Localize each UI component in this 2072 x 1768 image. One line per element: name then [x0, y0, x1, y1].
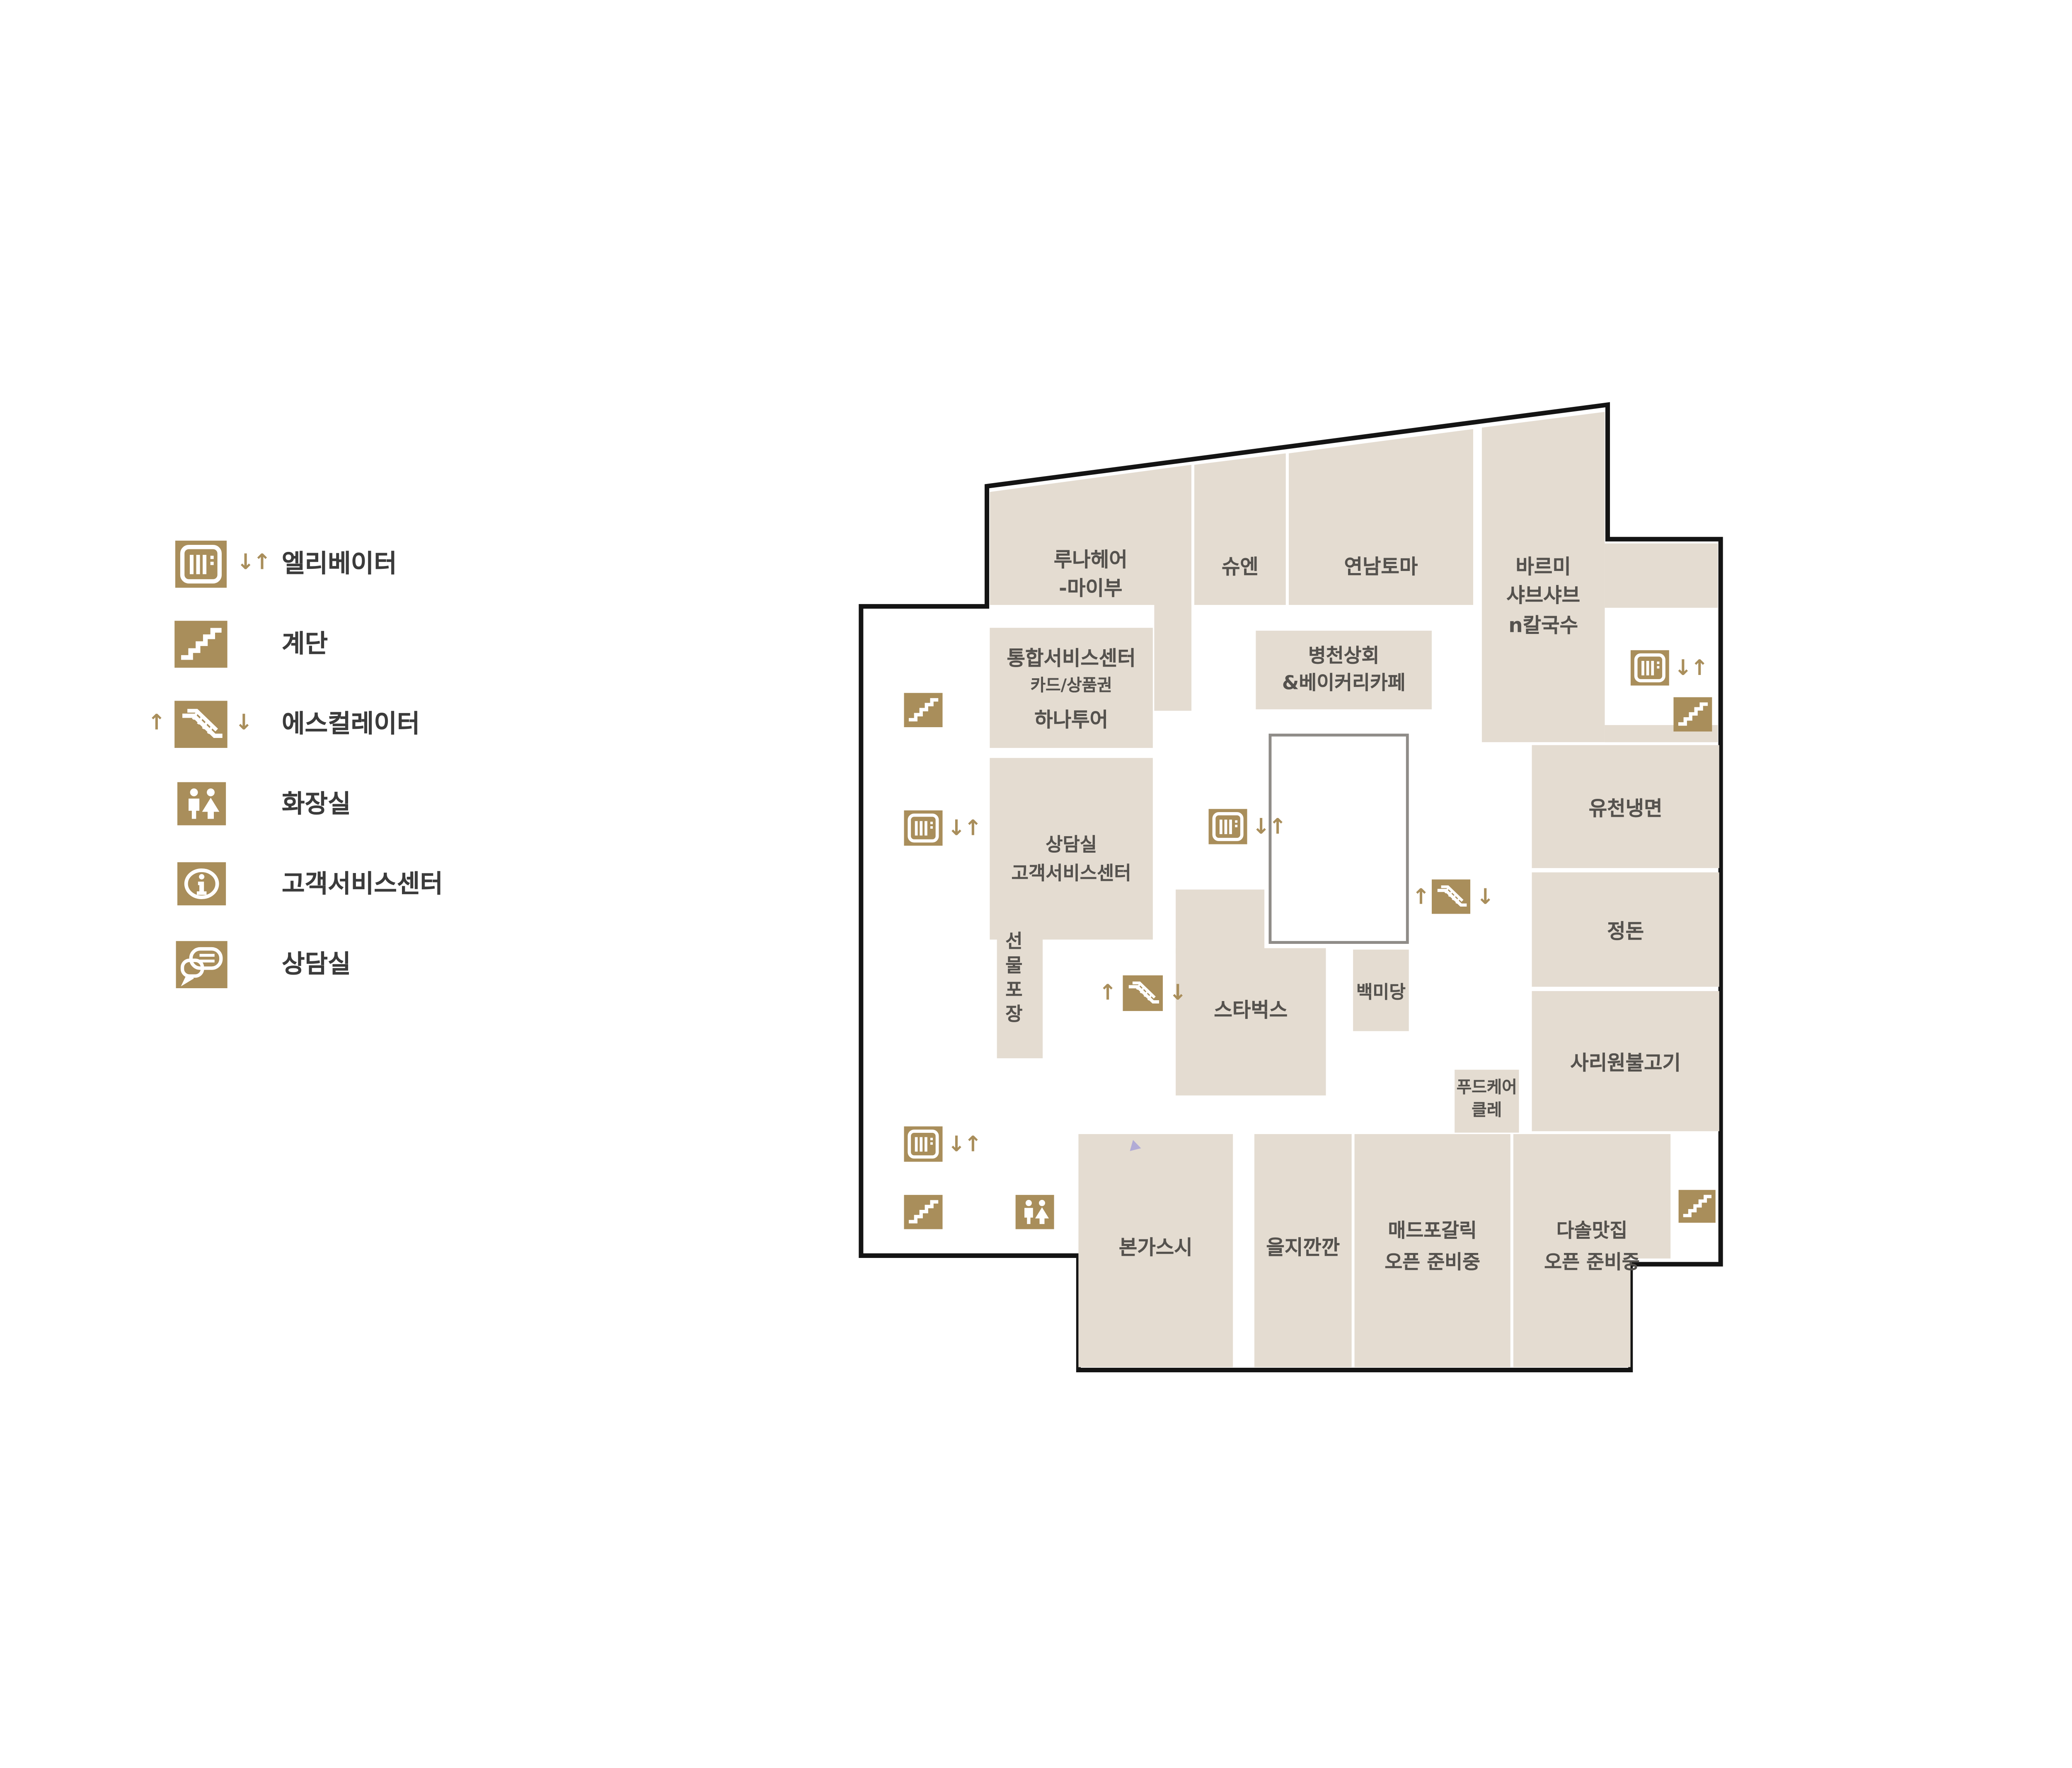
store-luna-hair-annex	[1154, 605, 1191, 711]
stairs-icon	[1678, 1190, 1716, 1223]
store-label: 정돈	[1532, 919, 1719, 948]
store-label: 선물포장	[997, 908, 1043, 1051]
store-label: 매드포갈릭 오픈 준비중	[1355, 1217, 1510, 1279]
escalator-down-arrow: ↓	[1474, 887, 1494, 908]
store-label: 백미당	[1353, 980, 1409, 1005]
legend-label-elevator: 엘리베이터	[282, 549, 397, 580]
elevator-icon	[174, 541, 228, 588]
store-label: 다솔맛집 오픈 준비중	[1513, 1217, 1671, 1279]
stairs-icon	[1673, 697, 1712, 732]
store-label: 하나투어	[990, 708, 1152, 736]
store-starbucks-upper	[1176, 890, 1264, 954]
floor-plan-page: ↓↑ 엘리베이터 계단 ↑ ↓ 에스컬레이터 화장실 고객서비스센터 상담실	[0, 0, 2072, 1768]
elevator-arrows: ↓↑	[1250, 817, 1288, 838]
store-label: 통합서비스센터	[990, 646, 1152, 675]
legend-label-consult-room: 상담실	[282, 950, 351, 981]
store-label: 연남토마	[1289, 555, 1473, 583]
escalator-down-arrow: ↓	[233, 712, 253, 734]
elevator-icon	[1631, 649, 1669, 687]
store-label: 루나헤어 -마이부	[990, 548, 1191, 605]
restroom-icon	[1016, 1194, 1054, 1230]
store-label: 스타벅스	[1176, 998, 1326, 1027]
store-label: 본가스시	[1078, 1236, 1233, 1264]
elevator-arrows: ↓↑	[232, 552, 275, 573]
elevator-arrows: ↓↑	[945, 818, 983, 839]
elevator-icon	[904, 1125, 942, 1163]
elevator-icon	[1209, 808, 1247, 845]
escalator-up-arrow: ↑	[1410, 887, 1430, 908]
elevator-icon	[904, 810, 942, 847]
legend-label-escalator: 에스컬레이터	[282, 709, 420, 741]
escalator-up-arrow: ↑	[1097, 982, 1117, 1004]
store-label: 바르미 샤브샤브 n칼국수	[1482, 554, 1605, 641]
store-label: 사리원불고기	[1532, 1051, 1719, 1080]
stairs-icon	[904, 1194, 942, 1230]
escalator-up-arrow: ↑	[146, 712, 166, 734]
legend-label-info-center: 고객서비스센터	[282, 870, 443, 901]
store-label: 카드/상품권	[990, 674, 1152, 697]
store-label: 푸드케어 클레	[1455, 1077, 1519, 1121]
escalator-icon	[174, 701, 228, 748]
store-label: 고객서비스센터	[990, 862, 1152, 889]
store-label: 슈엔	[1194, 555, 1286, 583]
escalator-icon	[1123, 974, 1163, 1012]
stairs-icon	[904, 692, 942, 728]
escalator-icon	[1432, 878, 1470, 915]
stairs-icon	[174, 621, 228, 668]
elevator-arrows: ↓↑	[1672, 658, 1709, 680]
info-icon	[177, 861, 226, 907]
store-label: 상담실	[990, 834, 1152, 860]
elevator-arrows: ↓↑	[945, 1134, 983, 1156]
store-bareumi-band	[1605, 544, 1718, 608]
restroom-icon	[177, 781, 226, 827]
escalator-down-arrow: ↓	[1167, 982, 1187, 1004]
store-label: 을지깐깐	[1254, 1236, 1352, 1264]
consult-icon	[176, 941, 228, 988]
atrium-void	[1268, 734, 1409, 944]
legend-label-restroom: 화장실	[282, 789, 351, 821]
legend-label-stairs: 계단	[282, 629, 328, 661]
store-label: 유천냉면	[1532, 796, 1719, 825]
store-label: 병천상회 &베이커리카페	[1256, 643, 1432, 697]
